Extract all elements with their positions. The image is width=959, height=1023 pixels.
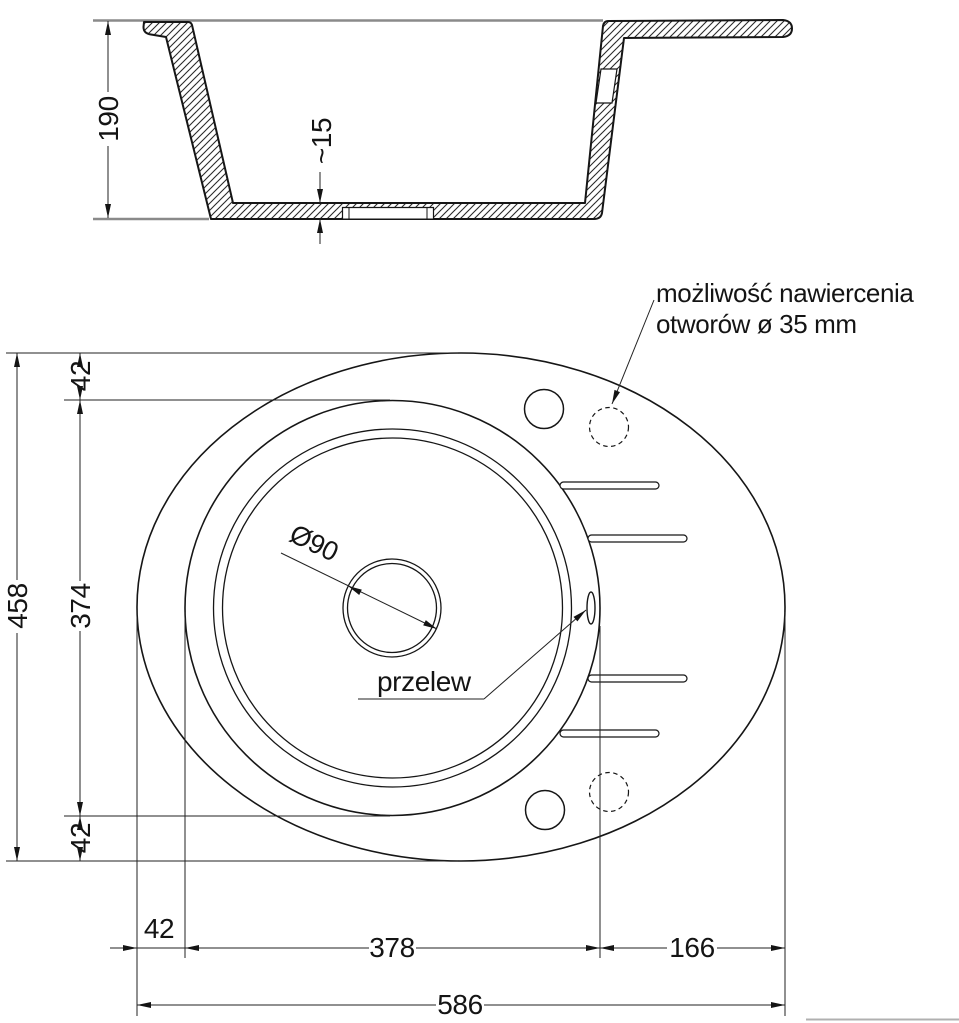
sink-technical-drawing: 190 ~15: [0, 0, 959, 1023]
groove-2: [588, 535, 687, 542]
dim-total-height-label: 458: [2, 583, 33, 629]
drill-note-line1: możliwość nawiercenia: [656, 278, 914, 308]
dim-bottom-thickness-label: ~15: [306, 118, 337, 164]
dimension-width-chain: 42 378 166: [110, 913, 785, 963]
faucet-hole-bottom: [526, 791, 565, 830]
drill-note: możliwość nawiercenia otworów ø 35 mm: [612, 278, 914, 404]
dim-bowl-width-label: 378: [369, 932, 415, 963]
groove-1: [560, 482, 659, 489]
dimension-height-chain: 42 374 42: [65, 353, 96, 861]
dimension-section-height: 190: [93, 21, 124, 218]
dim-right-section-label: 166: [669, 932, 715, 963]
optional-hole-top: [590, 408, 629, 447]
sink-section-profile: [144, 20, 793, 219]
drill-note-line2: otworów ø 35 mm: [656, 309, 857, 339]
sink-technical-drawing-page: 190 ~15: [0, 0, 959, 1023]
drain-recess: [343, 208, 434, 220]
drain-inner-circle: [348, 564, 437, 653]
dimension-total-width: 586: [137, 989, 785, 1020]
overflow-label: przelew: [377, 666, 472, 697]
dim-left-margin-label: 42: [144, 913, 174, 944]
dim-section-height-label: 190: [93, 96, 124, 142]
dim-drain-diameter-label: Ø90: [285, 519, 343, 568]
sink-outer-oval: [137, 353, 785, 861]
bowl-inner-edge-outer: [214, 429, 572, 787]
optional-hole-bottom: [590, 773, 629, 812]
faucet-hole-top: [525, 390, 564, 429]
dim-bowl-height-label: 374: [65, 583, 96, 629]
drain-outer-circle: [343, 559, 441, 657]
plan-view: możliwość nawiercenia otworów ø 35 mm Ø9…: [137, 278, 914, 861]
bowl-inner-edge-inner: [223, 438, 563, 778]
section-view: 190 ~15: [93, 20, 792, 244]
groove-4: [560, 730, 659, 737]
dimension-bottom-thickness: ~15: [306, 118, 337, 244]
groove-3: [588, 675, 687, 682]
dimension-drain-diameter: Ø90: [281, 519, 437, 629]
dim-bottom-margin-label: 42: [65, 823, 96, 853]
dim-top-margin-label: 42: [65, 361, 96, 391]
overflow-callout: przelew: [358, 610, 586, 699]
dimension-total-height: 458: [2, 353, 33, 861]
overflow-slot: [587, 592, 595, 624]
bowl-outer-circle: [185, 401, 600, 816]
dim-total-width-label: 586: [437, 989, 483, 1020]
